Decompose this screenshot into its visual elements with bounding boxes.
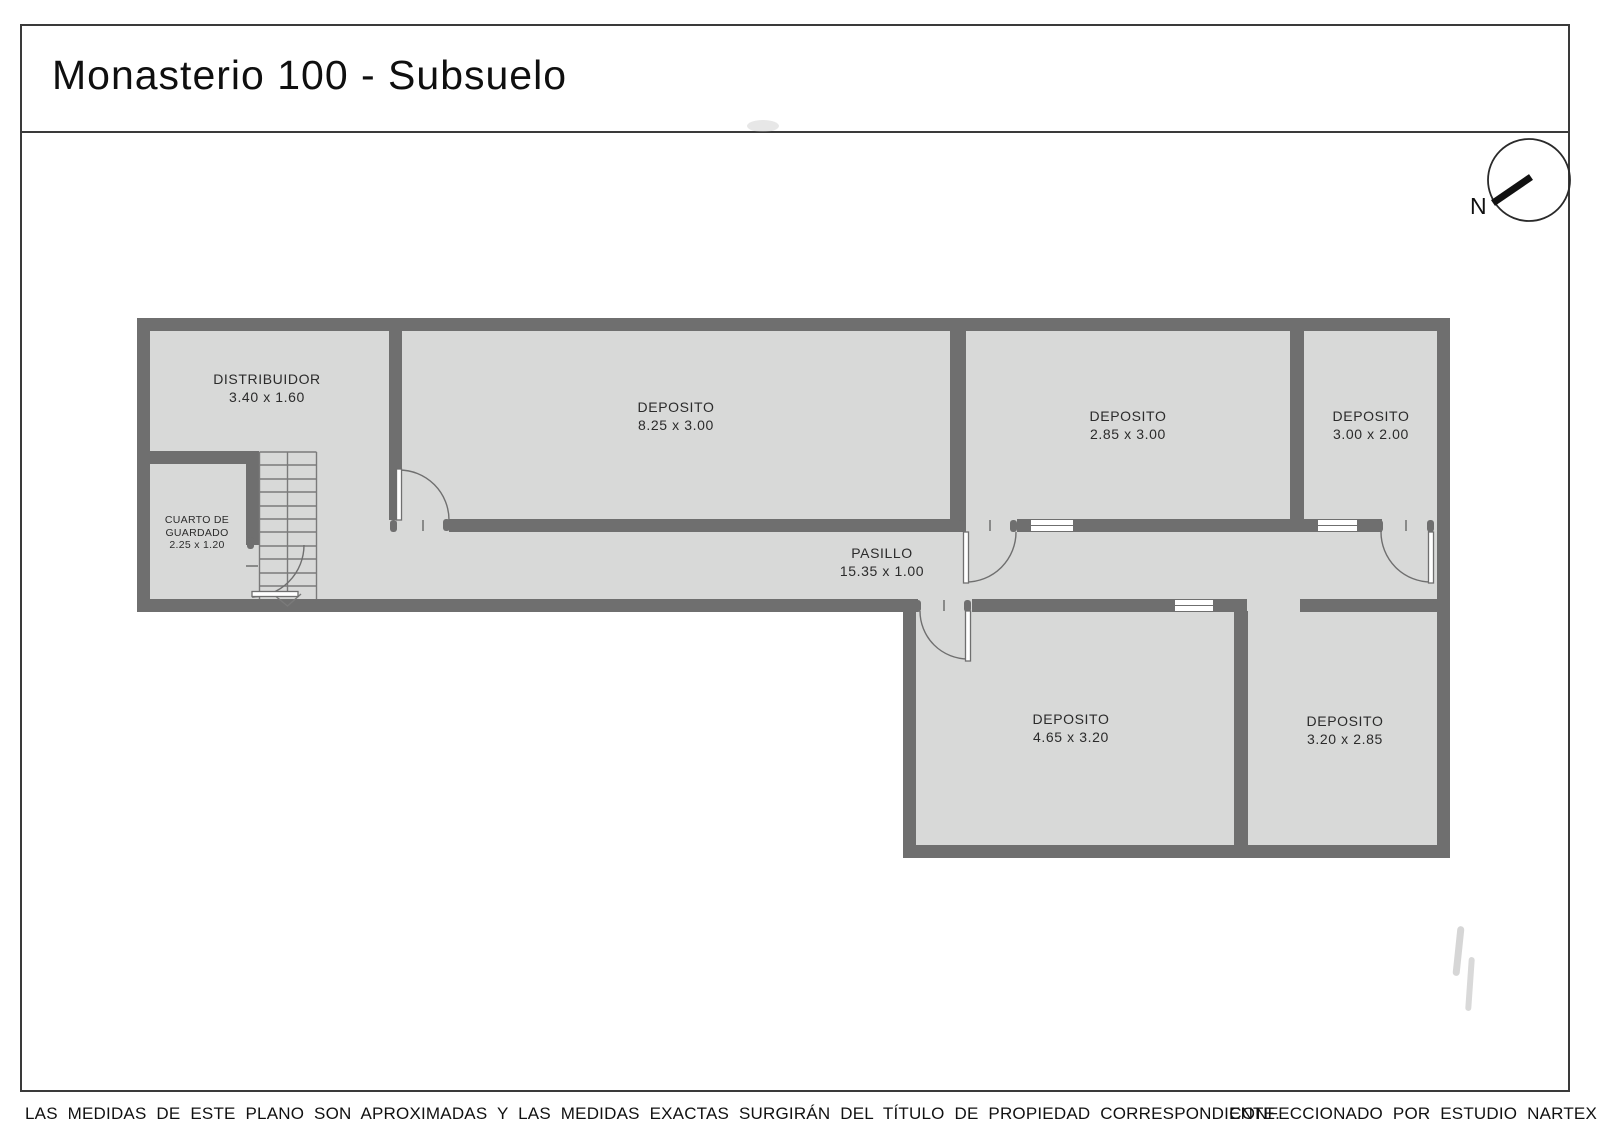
room-name: DEPOSITO: [1333, 407, 1410, 425]
door-jamb-cap: [914, 600, 921, 612]
door-jamb-cap: [1010, 520, 1017, 532]
plan-title: Monasterio 100 - Subsuelo: [52, 52, 567, 99]
room-dimensions: 8.25 x 3.00: [638, 416, 715, 434]
room-dimensions: 4.65 x 3.20: [1033, 728, 1110, 746]
wall-pasillo-deposito4-a: [972, 599, 1175, 612]
door-jamb-cap: [1427, 520, 1434, 532]
title-divider-line: [20, 131, 1570, 133]
room-dimensions: 3.00 x 2.00: [1333, 425, 1410, 443]
room-dimensions: 3.40 x 1.60: [213, 388, 321, 406]
vent-window-deposito2: [1031, 519, 1073, 532]
door-jamb-cap: [964, 600, 971, 612]
wall-cuarto-right: [246, 451, 259, 545]
room-dimensions: 2.25 x 1.20: [165, 539, 229, 552]
room-name: PASILLO: [840, 544, 924, 562]
wall-deposito2-deposito3: [1290, 330, 1304, 532]
wall-outer-left-lower-wing: [903, 611, 916, 858]
door-jamb-cap: [443, 519, 450, 531]
room-label-cuarto-de-guardado: CUARTO DE GUARDADO 2.25 x 1.20: [165, 514, 229, 552]
door-jamb-cap: [247, 537, 254, 549]
vent-window-deposito3: [1318, 519, 1357, 532]
room-label-deposito-5: DEPOSITO 3.20 x 2.85: [1307, 712, 1384, 748]
floor-area-upper: [149, 330, 1437, 600]
room-name: DEPOSITO: [1033, 710, 1110, 728]
wall-outer-right: [1437, 318, 1450, 858]
footer-credit: CONFECCIONADO POR ESTUDIO NARTEX: [1229, 1104, 1597, 1124]
wall-cuarto-top: [137, 451, 258, 464]
wall-outer-bottom-left-wing: [137, 599, 918, 612]
door-jamb-cap: [1376, 520, 1383, 532]
door-jamb-cap: [390, 520, 397, 532]
room-label-deposito-2: DEPOSITO 2.85 x 3.00: [1090, 407, 1167, 443]
room-name: DEPOSITO: [1307, 712, 1384, 730]
wall-deposito3-pasillo-a: [1304, 519, 1318, 532]
room-label-deposito-3: DEPOSITO 3.00 x 2.00: [1333, 407, 1410, 443]
room-label-pasillo: PASILLO 15.35 x 1.00: [840, 544, 924, 580]
room-name: DEPOSITO: [1090, 407, 1167, 425]
room-label-deposito-1: DEPOSITO 8.25 x 3.00: [638, 398, 715, 434]
room-name: GUARDADO: [165, 527, 229, 540]
vent-window-deposito4: [1175, 599, 1213, 612]
room-name: DISTRIBUIDOR: [213, 370, 321, 388]
wall-distribuidor-deposito1: [389, 330, 402, 520]
wall-outer-bottom: [903, 845, 1450, 858]
wall-outer-top: [137, 318, 1450, 331]
wall-deposito1-deposito2: [950, 330, 966, 532]
floor-plan-page: Monasterio 100 - Subsuelo: [0, 0, 1600, 1131]
room-label-distribuidor: DISTRIBUIDOR 3.40 x 1.60: [213, 370, 321, 406]
door-jamb-cap: [958, 520, 965, 532]
room-label-deposito-4: DEPOSITO 4.65 x 3.20: [1033, 710, 1110, 746]
wall-deposito1-pasillo: [449, 519, 950, 532]
room-name: CUARTO DE: [165, 514, 229, 527]
wall-deposito2-pasillo-a: [1017, 519, 1031, 532]
room-dimensions: 15.35 x 1.00: [840, 562, 924, 580]
wall-outer-left: [137, 318, 150, 612]
room-dimensions: 2.85 x 3.00: [1090, 425, 1167, 443]
wall-deposito2-pasillo-b: [1073, 519, 1292, 532]
wall-deposito4-deposito5: [1234, 611, 1248, 845]
room-name: DEPOSITO: [638, 398, 715, 416]
room-dimensions: 3.20 x 2.85: [1307, 730, 1384, 748]
wall-pasillo-deposito5: [1300, 599, 1437, 612]
footer-disclaimer: LAS MEDIDAS DE ESTE PLANO SON APROXIMADA…: [25, 1104, 1280, 1124]
